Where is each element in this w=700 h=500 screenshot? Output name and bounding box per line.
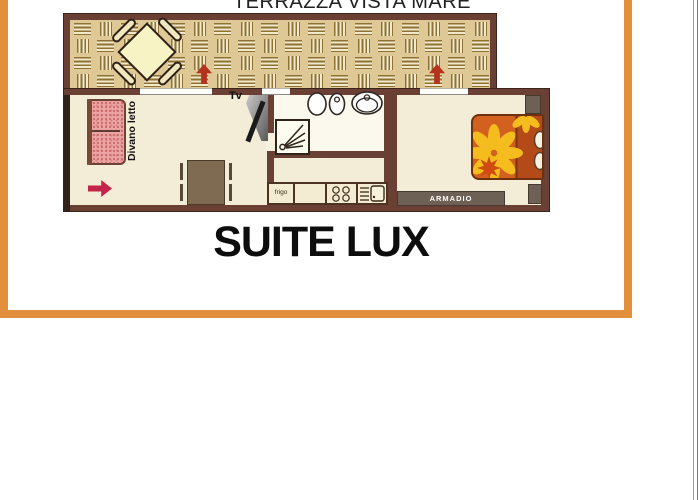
double-bed — [471, 114, 544, 180]
page-edge-line — [697, 0, 698, 500]
wardrobe: ARMADIO — [397, 191, 505, 206]
weave-cell — [448, 23, 465, 35]
weave-cell — [285, 75, 302, 87]
pillow — [535, 132, 545, 149]
weave-cell — [261, 57, 278, 69]
weave-cell — [308, 57, 325, 69]
shower — [275, 119, 310, 155]
weave-cell — [100, 56, 112, 70]
weave-cell — [355, 57, 372, 69]
suite-title: SUITE LUX — [10, 218, 632, 267]
kitchen-counter — [293, 182, 327, 205]
floor-plan-page: TERRAZZA VISTA MARE Divano letto Tv — [0, 0, 700, 500]
weave-cell — [214, 57, 231, 69]
tv-label: Tv — [229, 90, 242, 102]
weave-cell — [381, 22, 393, 36]
weave-cell — [331, 75, 348, 87]
weave-cell — [405, 39, 417, 53]
left-wall-shadow — [63, 95, 70, 212]
weave-cell — [77, 74, 89, 88]
sofa-seam — [92, 130, 120, 132]
weave-cell — [241, 56, 253, 70]
weave-cell — [358, 74, 370, 88]
weave-cell — [381, 56, 393, 70]
page-edge-line — [693, 0, 694, 500]
weave-cell — [358, 39, 370, 53]
fridge-label: frigo — [269, 189, 293, 196]
weave-cell — [261, 23, 278, 35]
weave-cell — [425, 40, 442, 52]
weave-cell — [74, 23, 91, 35]
weave-cell — [451, 74, 463, 88]
dining-table — [187, 160, 225, 205]
weave-cell — [378, 75, 395, 87]
weave-cell — [402, 57, 419, 69]
weave-cell — [311, 39, 323, 53]
stove — [325, 182, 358, 205]
weave-cell — [378, 40, 395, 52]
weave-cell — [97, 40, 114, 52]
dining-chair — [180, 163, 183, 180]
weave-cell — [334, 56, 346, 70]
weave-cell — [405, 74, 417, 88]
weave-cell — [214, 23, 231, 35]
weave-cell — [472, 40, 489, 52]
weave-cell — [331, 40, 348, 52]
weave-cell — [475, 22, 487, 36]
weave-cell — [402, 23, 419, 35]
weave-cell — [100, 22, 112, 36]
terrace-title: TERRAZZA VISTA MARE — [72, 0, 632, 14]
sofa-bed — [87, 99, 126, 165]
terrace-window-bedroom — [420, 88, 468, 95]
weave-cell — [238, 75, 255, 87]
bathroom-fixtures — [274, 90, 384, 120]
nightstand — [525, 95, 541, 114]
weave-cell — [264, 74, 276, 88]
weave-cell — [74, 57, 91, 69]
weave-cell — [285, 40, 302, 52]
weave-cell — [355, 23, 372, 35]
weave-cell — [241, 22, 253, 36]
dining-chair — [229, 163, 232, 180]
weave-cell — [194, 22, 206, 36]
weave-cell — [451, 39, 463, 53]
sofa-bed-label: Divano letto — [126, 96, 140, 166]
weave-cell — [308, 23, 325, 35]
weave-cell — [334, 22, 346, 36]
weave-cell — [264, 39, 276, 53]
bedroom-cabinet — [528, 184, 542, 204]
weave-cell — [288, 56, 300, 70]
weave-cell — [472, 75, 489, 87]
flower-core — [477, 156, 501, 180]
weave-cell — [97, 75, 114, 87]
weave-cell — [428, 22, 440, 36]
weave-cell — [77, 39, 89, 53]
pillow — [535, 153, 545, 170]
weave-cell — [217, 74, 229, 88]
weave-cell — [475, 56, 487, 70]
dining-chair — [229, 184, 232, 201]
weave-cell — [238, 40, 255, 52]
weave-cell — [217, 39, 229, 53]
weave-cell — [448, 57, 465, 69]
terrace-window-living — [140, 88, 212, 95]
weave-cell — [191, 40, 208, 52]
kitchen-sink — [356, 182, 388, 205]
weave-cell — [311, 74, 323, 88]
weave-cell — [288, 22, 300, 36]
dining-chair — [180, 184, 183, 201]
